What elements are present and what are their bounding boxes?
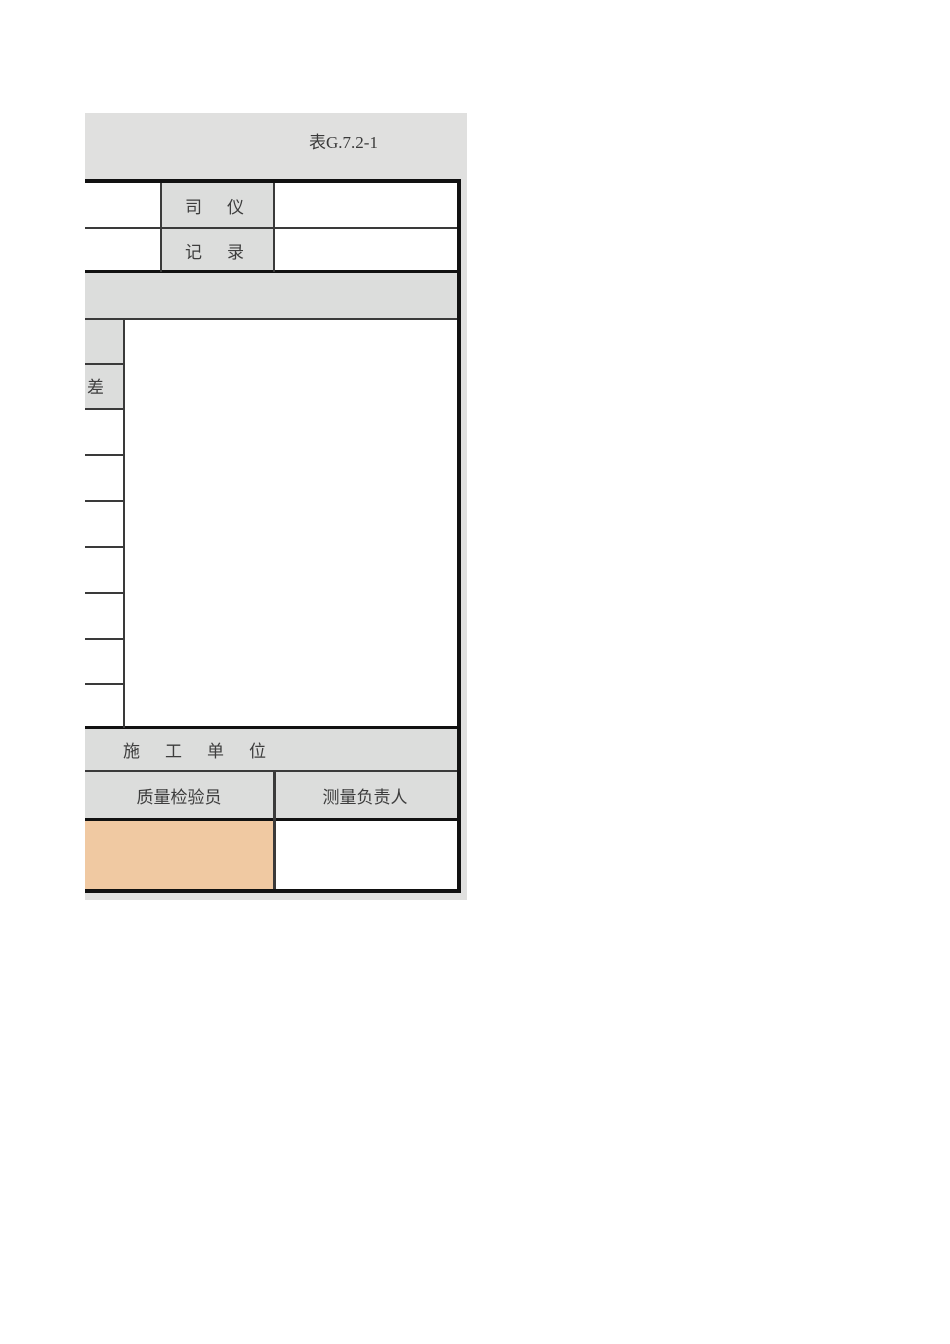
- grid-line: [85, 592, 123, 594]
- grid-line: [123, 318, 125, 728]
- instrument-operator-value-cell[interactable]: [273, 183, 457, 227]
- grid-line: [85, 638, 123, 640]
- deviation-header-partial: 差: [85, 363, 123, 408]
- left-column-empty-row[interactable]: [85, 683, 123, 727]
- record-table: 司 仪 记 录 差 施 工 单 位 质量检验员 测量负责人: [85, 179, 461, 893]
- construction-unit-label: 施 工 单 位: [85, 726, 457, 772]
- left-column-empty-row[interactable]: [85, 454, 123, 500]
- left-header-stub-cell: [85, 318, 123, 363]
- quality-inspector-signature-cell[interactable]: [85, 821, 273, 889]
- section-border: [85, 270, 457, 273]
- grid-line: [85, 770, 457, 772]
- left-column-empty-row[interactable]: [85, 592, 123, 638]
- quality-inspector-header: 质量检验员: [85, 772, 273, 818]
- table-code-label: 表G.7.2-1: [309, 128, 378, 153]
- section-border: [85, 726, 457, 729]
- section-border: [85, 818, 457, 821]
- grid-line: [273, 183, 275, 272]
- survey-supervisor-header: 测量负责人: [273, 772, 457, 818]
- grid-line: [85, 683, 123, 685]
- recorder-label: 记 录: [160, 229, 273, 272]
- personnel-row-left-stub-2[interactable]: [85, 229, 160, 272]
- grid-line: [85, 363, 123, 365]
- left-column-empty-row[interactable]: [85, 546, 123, 592]
- instrument-operator-label: 司 仪: [160, 183, 273, 227]
- grid-line: [273, 772, 276, 889]
- survey-supervisor-signature-cell[interactable]: [273, 821, 457, 889]
- grid-line: [85, 227, 457, 229]
- left-column-empty-row[interactable]: [85, 638, 123, 683]
- grid-line: [85, 408, 123, 410]
- left-column-empty-row[interactable]: [85, 408, 123, 454]
- form-backdrop: 表G.7.2-1 司 仪 记 录 差 施 工 单 位 质量检验员 测量负责人: [85, 113, 467, 900]
- grid-line: [85, 454, 123, 456]
- spacer-band: [85, 272, 457, 318]
- personnel-row-left-stub-1[interactable]: [85, 183, 160, 227]
- grid-line: [85, 500, 123, 502]
- recorder-value-cell[interactable]: [273, 229, 457, 272]
- grid-line: [160, 183, 162, 272]
- grid-line: [85, 318, 457, 320]
- grid-line: [85, 546, 123, 548]
- left-column-empty-row[interactable]: [85, 500, 123, 546]
- measurement-main-area[interactable]: [123, 318, 457, 726]
